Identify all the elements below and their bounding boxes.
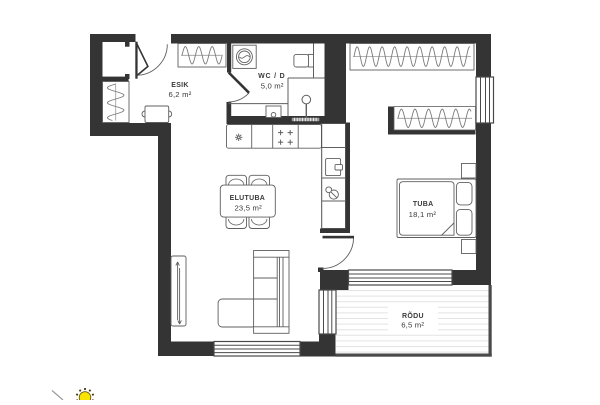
svg-text:6,2 m²: 6,2 m² [169,90,192,99]
svg-text:ESIK: ESIK [171,82,189,89]
svg-text:RÕDU: RÕDU [402,311,424,320]
svg-text:ELUTUBA: ELUTUBA [230,195,266,202]
svg-text:TUBA: TUBA [413,201,434,208]
svg-text:23,5 m²: 23,5 m² [234,203,262,212]
svg-text:6,5 m²: 6,5 m² [401,321,424,330]
svg-text:WC / D: WC / D [258,73,285,80]
svg-text:18,1 m²: 18,1 m² [409,210,437,219]
svg-text:5,0 m²: 5,0 m² [261,81,284,90]
